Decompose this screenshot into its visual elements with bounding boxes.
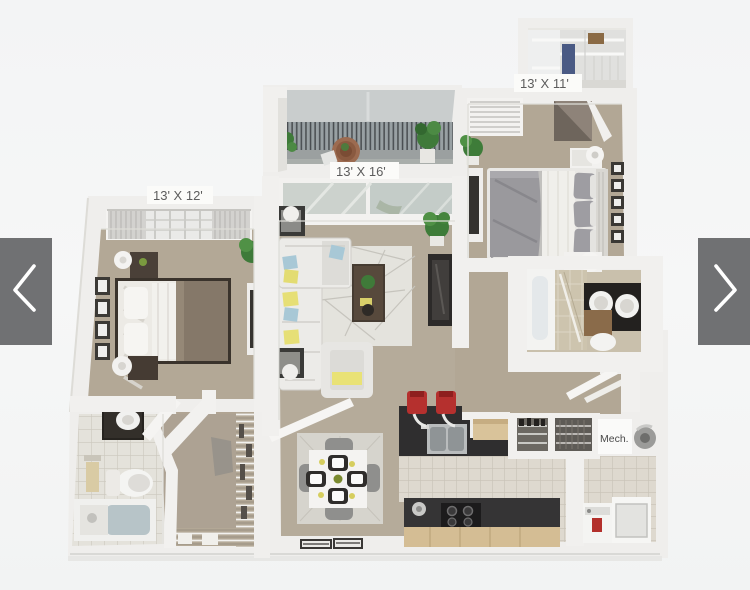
svg-text:13' X 11': 13' X 11'	[520, 76, 569, 91]
svg-text:13' X 16': 13' X 16'	[336, 164, 386, 179]
svg-text:13' X 12': 13' X 12'	[153, 188, 203, 203]
svg-text:Mech.: Mech.	[600, 433, 629, 445]
